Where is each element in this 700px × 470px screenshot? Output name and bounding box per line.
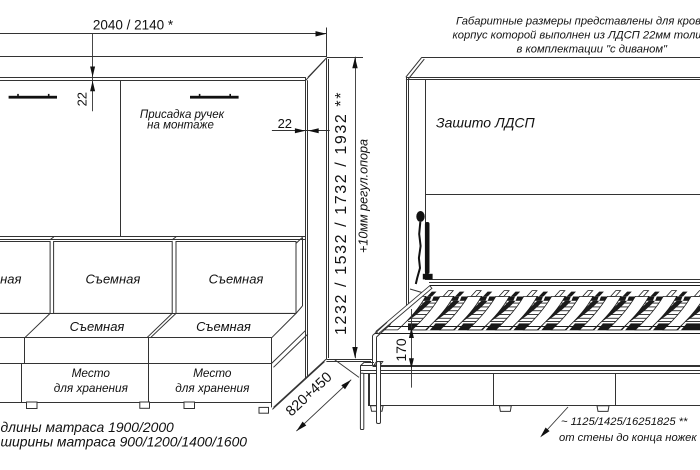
svg-text:Место: Место — [193, 366, 232, 380]
svg-text:2040 / 2140 *: 2040 / 2140 * — [93, 18, 174, 33]
svg-text:длины матраса 1900/2000: длины матраса 1900/2000 — [1, 419, 175, 435]
svg-text:~ 1125/1425/16251825 **: ~ 1125/1425/16251825 ** — [561, 416, 688, 428]
svg-text:для хранения: для хранения — [175, 381, 250, 395]
svg-text:Съемная: Съемная — [86, 272, 141, 287]
svg-text:22: 22 — [75, 92, 90, 106]
svg-text:170: 170 — [393, 338, 409, 362]
svg-text:Съемная: Съемная — [196, 319, 251, 334]
svg-text:Место: Место — [72, 366, 111, 380]
svg-text:Съемная: Съемная — [209, 272, 264, 287]
svg-text:для хранения: для хранения — [54, 381, 129, 395]
svg-text:22: 22 — [278, 116, 292, 131]
svg-text:Съемная: Съемная — [0, 272, 21, 287]
svg-text:Зашито ЛДСП: Зашито ЛДСП — [436, 114, 536, 130]
svg-text:в комплектации "с диваном": в комплектации "с диваном" — [517, 44, 669, 56]
svg-text:корпус которой выполнен из ЛДС: корпус которой выполнен из ЛДСП 22мм тол… — [453, 30, 700, 42]
svg-text:1232 / 1532 / 1732 / 1932 **: 1232 / 1532 / 1732 / 1932 ** — [333, 91, 350, 335]
svg-text:+10мм регул.опора: +10мм регул.опора — [357, 139, 371, 253]
svg-text:от стены до конца ножек: от стены до конца ножек — [559, 432, 697, 444]
svg-text:Габаритные размеры представлен: Габаритные размеры представлены для кров… — [456, 15, 700, 27]
svg-text:на монтаже: на монтаже — [147, 120, 214, 132]
svg-text:Съемная: Съемная — [70, 319, 125, 334]
svg-text:ширины матраса 900/1200/1400/1: ширины матраса 900/1200/1400/1600 — [1, 433, 248, 449]
svg-text:820+450: 820+450 — [283, 369, 335, 419]
